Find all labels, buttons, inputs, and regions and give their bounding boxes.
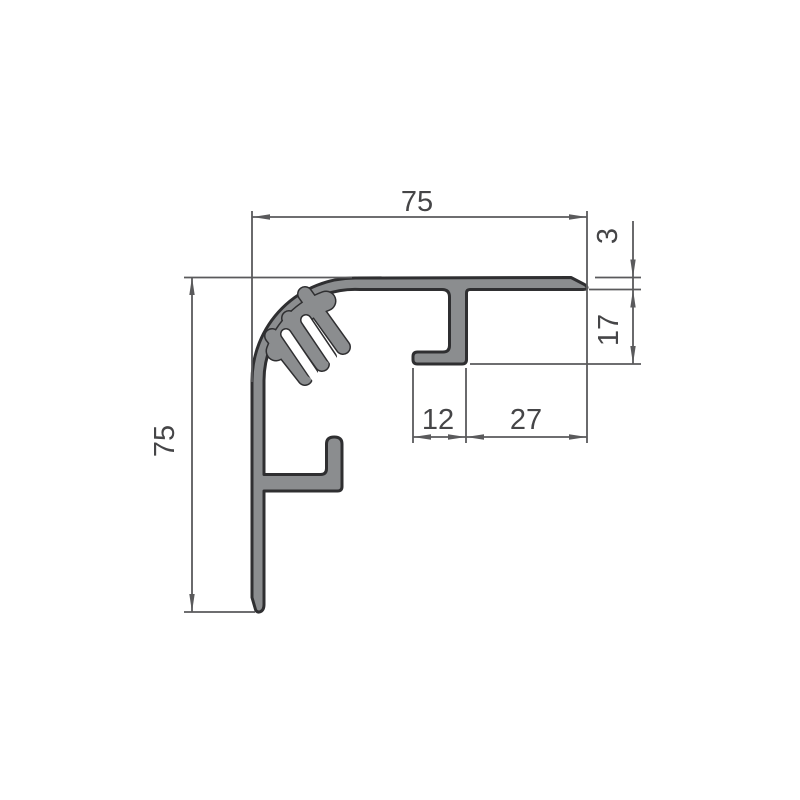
arrow-flange-left	[466, 434, 484, 439]
dimension-right-column: 3 17	[470, 221, 641, 364]
profile-cross-section-drawing: 75 75 3 17 12 27	[0, 0, 800, 800]
profile-body	[252, 278, 587, 613]
dim-label-height-left: 75	[149, 425, 181, 457]
dim-label-hook-width: 12	[422, 404, 454, 436]
arrow-flange-right	[569, 434, 587, 439]
arrow-right	[569, 214, 587, 219]
dim-label-flange-thickness: 3	[592, 228, 624, 244]
arrow-depth-up	[630, 290, 635, 308]
arrow-down	[189, 594, 194, 612]
arrow-thickness-down	[630, 260, 635, 278]
technical-drawing-page: 75 75 3 17 12 27	[0, 0, 800, 800]
arrow-up	[189, 277, 194, 295]
arrow-depth-down	[630, 346, 635, 364]
arrow-left	[252, 214, 270, 219]
dim-label-channel-depth: 17	[593, 314, 625, 346]
dimension-bottom-row: 12 27	[413, 368, 587, 443]
dim-label-flange-extension: 27	[510, 404, 542, 436]
dim-label-width-top: 75	[401, 186, 433, 218]
